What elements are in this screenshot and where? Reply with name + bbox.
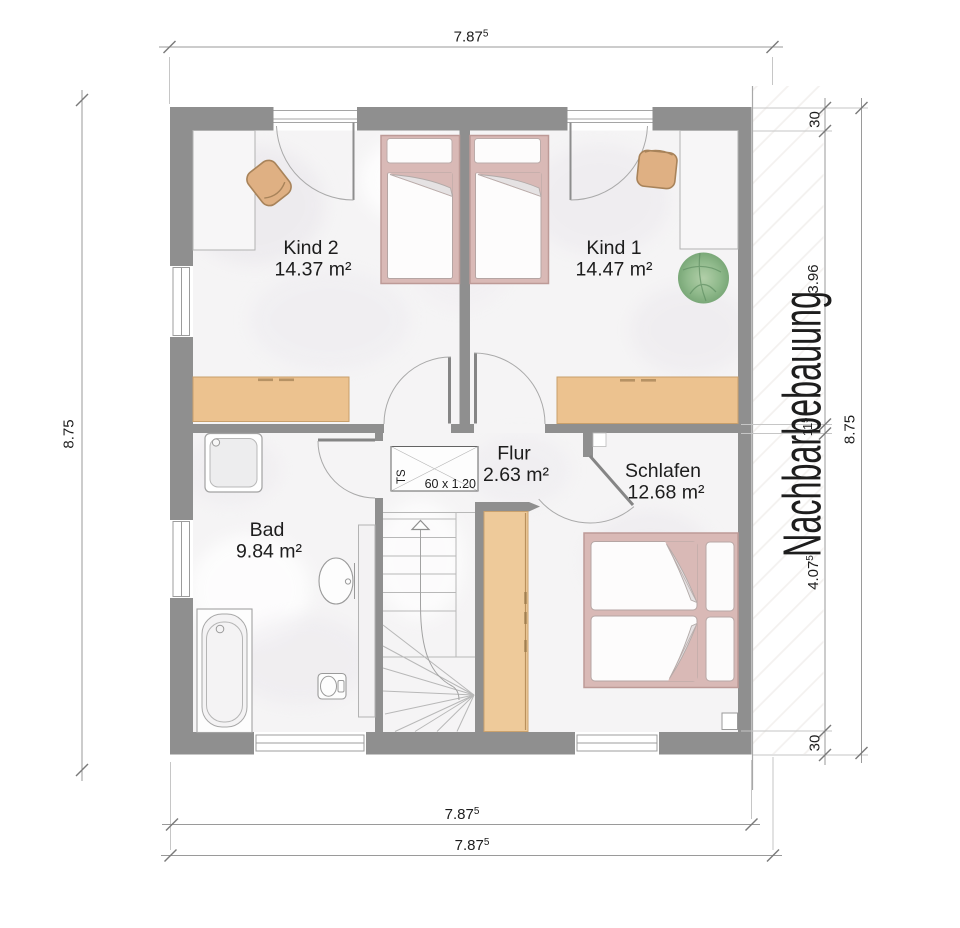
svg-text:TS: TS (396, 469, 408, 484)
svg-text:14.37 m²: 14.37 m² (275, 259, 352, 281)
svg-text:Bad: Bad (250, 519, 285, 541)
svg-text:8.75: 8.75 (61, 419, 78, 448)
svg-text:9.84 m²: 9.84 m² (236, 541, 303, 563)
svg-text:30: 30 (807, 111, 824, 128)
svg-text:7.875: 7.875 (454, 29, 489, 46)
svg-text:12.68 m²: 12.68 m² (628, 482, 705, 504)
svg-text:Flur: Flur (497, 443, 531, 465)
svg-text:Kind 1: Kind 1 (586, 237, 641, 259)
svg-text:7.875: 7.875 (445, 806, 480, 823)
svg-text:60 x 1.20: 60 x 1.20 (425, 477, 476, 491)
svg-text:2.63 m²: 2.63 m² (483, 464, 550, 486)
svg-text:8.75: 8.75 (842, 415, 859, 444)
svg-text:3.96: 3.96 (805, 264, 822, 293)
svg-text:7.875: 7.875 (455, 837, 490, 854)
svg-text:Schlafen: Schlafen (625, 460, 701, 482)
svg-text:14.47 m²: 14.47 m² (576, 259, 653, 281)
svg-text:Nachbarbebauung: Nachbarbebauung (773, 291, 833, 557)
svg-text:30: 30 (807, 735, 824, 752)
svg-text:Kind 2: Kind 2 (283, 237, 338, 259)
